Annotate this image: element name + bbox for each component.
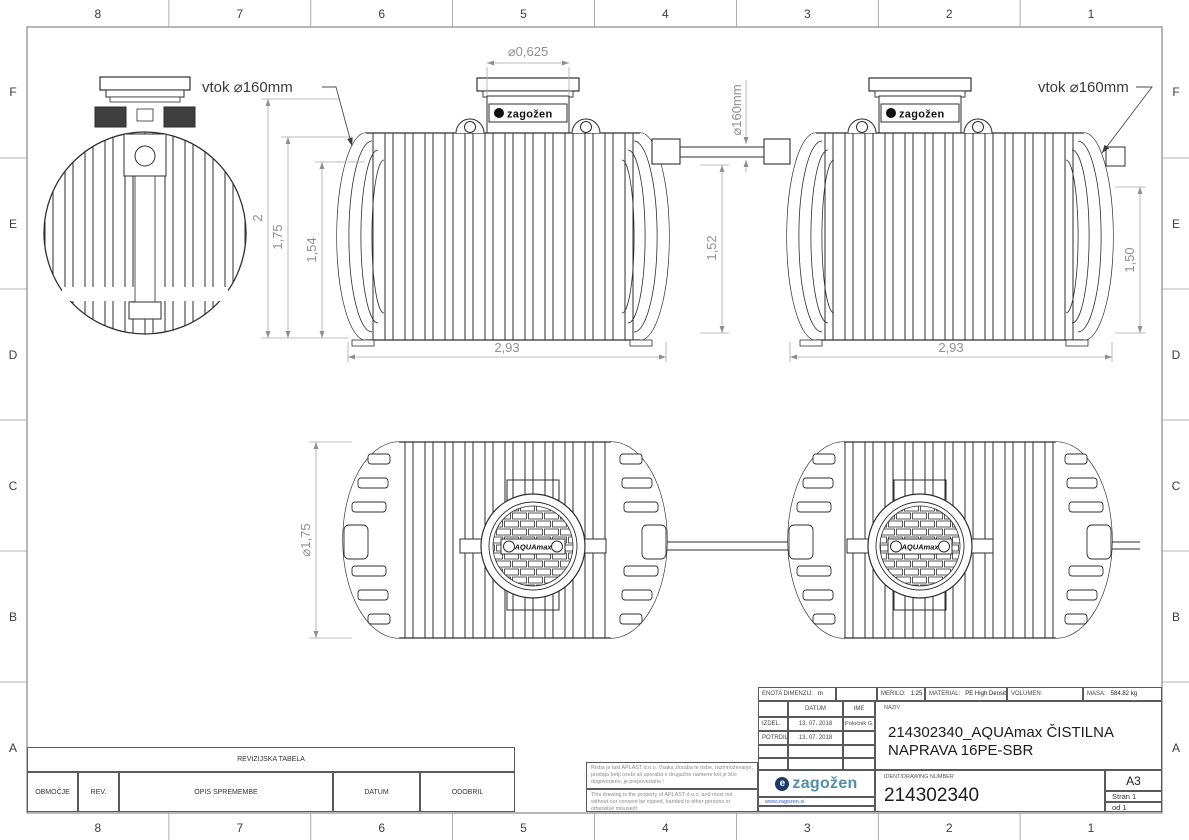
frame-row-label: F [1172, 85, 1179, 99]
cap-housing [1087, 525, 1111, 559]
revision-col-label: DATUM [364, 789, 388, 796]
zagozen-logo-icon: e [775, 777, 789, 791]
frame-col-label: 3 [804, 7, 811, 21]
approved-label: POTRDIL [759, 735, 788, 741]
revision-col-label: REV. [91, 789, 107, 796]
manhole-label: AQUAmax [900, 543, 939, 552]
frame-col-label: 2 [946, 7, 953, 21]
zagozen-logo-text: zagožen [792, 775, 857, 793]
dim-pipe-diameter: ⌀160mm [729, 84, 744, 135]
manhole-screw [552, 541, 563, 552]
empty-cell [758, 745, 788, 758]
page-of-cell: od 1 [1105, 802, 1162, 812]
made-date: 13. 07. 2018 [799, 721, 832, 727]
manhole-lid [100, 77, 190, 90]
material-value: PE High Density [960, 691, 1007, 697]
spare-cell [836, 687, 877, 701]
manhole-screw [939, 541, 950, 552]
empty-cell [788, 758, 843, 770]
zagozen-badge-icon [886, 108, 896, 118]
empty-cell [788, 745, 843, 758]
inlet-leader-right [1102, 87, 1152, 153]
material-label: MATERIAL: [926, 691, 960, 697]
cap-housing [642, 525, 666, 559]
empty-cell [758, 758, 788, 770]
frame-col-label: 5 [520, 7, 527, 21]
revision-col-label: ODOBRIL [452, 789, 484, 796]
sheet-format: A3 [1126, 774, 1141, 788]
inlet-port [135, 146, 155, 166]
page-of: od 1 [1106, 803, 1127, 812]
page-cell: Stran 1 [1105, 791, 1162, 802]
frame-row-label: A [9, 741, 17, 755]
made-label: IZDEL. [759, 721, 781, 727]
dim-length-left: 2,93 [494, 340, 519, 355]
neck-seal-right [164, 107, 195, 127]
outlet-box [129, 302, 161, 319]
mass-value: 584.82 kg [1106, 691, 1137, 697]
frame-row-label: F [9, 85, 16, 99]
unit-label: ENOTA DIMENZIJ: [759, 691, 813, 697]
tank-top-view-left: AQUAmax [343, 442, 667, 638]
frame-col-label: 6 [378, 7, 385, 21]
ident-label: IDENT/DRAWING NUMBER [884, 774, 954, 780]
dim-height-150: 1,50 [1122, 247, 1137, 272]
revision-col-obmocje: OBMOČJE [27, 772, 78, 812]
frame-col-label: 7 [236, 7, 243, 21]
frame-row-label: C [9, 479, 18, 493]
lifting-lug [581, 122, 592, 133]
frame-row-label: E [9, 217, 17, 231]
made-name: Poločnik G. [844, 721, 874, 727]
title-block: ENOTA DIMENZIJ: m MERILO: 1:25 MATERIAL:… [758, 687, 1162, 812]
frame-col-label: 4 [662, 821, 669, 835]
sig-corner-cell [758, 701, 788, 717]
made-date-cell: 13. 07. 2018 [788, 717, 843, 731]
dim-height-154: 1,54 [304, 237, 319, 262]
frame-col-label: 5 [520, 821, 527, 835]
approved-label-cell: POTRDIL [758, 731, 788, 745]
tank-body [337, 133, 669, 340]
date-header-cell: DATUM [788, 701, 843, 717]
website-cell: www.zagozen.si [758, 797, 875, 806]
inlet-label-left: vtok ⌀160mm [202, 79, 293, 96]
tank-side-view-right: zagožen [787, 78, 1125, 346]
scale-label: MERILO: [878, 691, 906, 697]
name-header: IME [854, 706, 865, 712]
empty-cell [758, 806, 875, 812]
zagozen-badge-text: zagožen [899, 109, 945, 121]
frame-col-label: 7 [236, 821, 243, 835]
unit-cell: ENOTA DIMENZIJ: m [758, 687, 836, 701]
revision-col-rev: REV. [78, 772, 119, 812]
pipe-flange [652, 139, 680, 164]
frame-col-label: 3 [804, 821, 811, 835]
date-header: DATUM [805, 706, 826, 712]
dim-neck-diameter: ⌀0,625 [508, 44, 548, 59]
tank-body [787, 133, 1113, 340]
revision-col-label: OPIS SPREMEMBE [194, 789, 257, 796]
revision-col-datum: DATUM [333, 772, 420, 812]
manhole-label: AQUAmax [513, 543, 552, 552]
revision-col-label: OBMOČJE [35, 789, 70, 796]
neck-seal-left [95, 107, 126, 127]
pipe-flange [764, 139, 790, 164]
zagozen-badge-icon [494, 108, 504, 118]
revision-col-odobril: ODOBRIL [420, 772, 515, 812]
zagozen-badge-text: zagožen [507, 109, 553, 121]
frame-col-label: 8 [95, 821, 102, 835]
lifting-lug [857, 122, 868, 133]
made-label-cell: IZDEL. [758, 717, 788, 731]
unit-value: m [813, 691, 823, 697]
frame-row-label: D [9, 348, 18, 362]
revision-col-opis: OPIS SPREMEMBE [119, 772, 333, 812]
dim-height-152: 1,52 [704, 235, 719, 260]
revision-table: REVIZIJSKA TABELA OBMOČJE REV. OPIS SPRE… [27, 747, 515, 812]
format-cell: A3 [1105, 770, 1162, 791]
zagozen-logo-cell: e zagožen [758, 770, 875, 797]
mass-label: MASA: [1084, 691, 1106, 697]
manhole-screw [504, 541, 515, 552]
scale-value: 1:25 [906, 691, 923, 697]
frame-col-label: 6 [378, 821, 385, 835]
frame-col-label: 2 [946, 821, 953, 835]
frame-col-label: 8 [95, 7, 102, 21]
frame-row-label: C [1172, 479, 1181, 493]
manhole-lid [869, 78, 971, 91]
dim-height-175: 1,75 [270, 224, 285, 249]
legal-notice-en-cell: This drawing is the property of APLAST d… [586, 789, 758, 812]
inlet-label-right: vtok ⌀160mm [1038, 79, 1129, 96]
approved-name-cell [843, 731, 875, 745]
legal-notice-sl-cell: Risba je last APLAST d.o.o. Vsaka zlorab… [586, 762, 758, 789]
cap-housing [344, 525, 368, 559]
name-header-cell: IME [843, 701, 875, 717]
scale-cell: MERILO: 1:25 [877, 687, 925, 701]
website-link: www.zagozen.si [759, 799, 804, 805]
frame-row-label: B [1172, 610, 1180, 624]
revision-table-title: REVIZIJSKA TABELA [237, 756, 305, 763]
frame-row-label: A [1172, 741, 1180, 755]
frame-col-label: 1 [1088, 7, 1095, 21]
frame-row-label: E [1172, 217, 1180, 231]
frame-row-label: B [9, 610, 17, 624]
cap-housing [789, 525, 813, 559]
manhole-screw [891, 541, 902, 552]
connecting-pipe-side [652, 139, 790, 164]
volume-label: VOLUMEN: [1008, 691, 1042, 697]
mass-cell: MASA: 584.82 kg [1083, 687, 1162, 701]
connecting-pipe-top [667, 542, 788, 550]
tank-side-view-left: zagožen [337, 78, 669, 346]
empty-cell [843, 758, 875, 770]
page-number: Stran 1 [1106, 792, 1136, 801]
dim-tank-diameter: ⌀1,75 [298, 523, 313, 556]
side-stub [460, 539, 484, 553]
made-name-cell: Poločnik G. [843, 717, 875, 731]
lifting-lug [973, 122, 984, 133]
frame-col-label: 1 [1088, 821, 1095, 835]
legal-notice: Risba je last APLAST d.o.o. Vsaka zlorab… [586, 762, 758, 812]
revision-table-title-cell: REVIZIJSKA TABELA [27, 747, 515, 772]
dim-total-height: 2 [250, 214, 265, 221]
manhole-lid [477, 78, 579, 91]
dim-length-right: 2,93 [938, 340, 963, 355]
frame-row-label: D [1172, 348, 1181, 362]
volume-cell: VOLUMEN: [1007, 687, 1083, 701]
material-cell: MATERIAL: PE High Density [925, 687, 1007, 701]
approved-date-cell: 13. 07. 2018 [788, 731, 843, 745]
ident-cell: IDENT/DRAWING NUMBER 214302340 [875, 770, 1105, 812]
inlet-stub [1106, 147, 1125, 166]
legal-text-sl: Risba je last APLAST d.o.o. Vsaka zlorab… [587, 763, 757, 788]
drawing-title: 214302340_AQUAmax ČISTILNA NAPRAVA 16PE-… [888, 724, 1160, 760]
naziv-label: NAZIV [884, 705, 900, 711]
tank-top-view-right: AQUAmax [788, 442, 1140, 638]
lifting-lug [465, 122, 476, 133]
tank-front-view [44, 77, 246, 334]
drawing-sheet: { "frame": { "columns": ["8","7","6","5"… [0, 0, 1189, 840]
outlet-pipe [1112, 542, 1140, 549]
drawing-number: 214302340 [884, 785, 979, 807]
frame-col-label: 4 [662, 7, 669, 21]
empty-cell [843, 745, 875, 758]
approved-date: 13. 07. 2018 [799, 735, 832, 741]
naziv-cell: NAZIV 214302340_AQUAmax ČISTILNA NAPRAVA… [875, 701, 1162, 770]
legal-text-en: This drawing is the property of APLAST d… [587, 790, 757, 812]
